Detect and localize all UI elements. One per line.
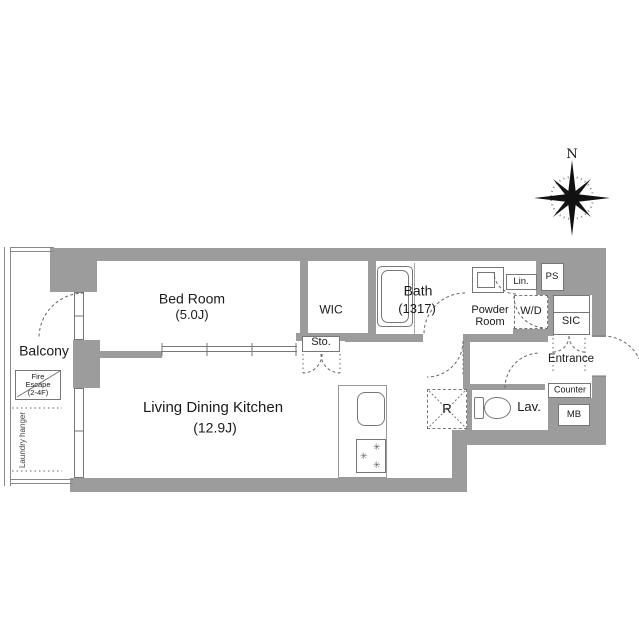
room-size-bedroom: (5.0J) — [175, 308, 208, 322]
dotted-guides — [12, 338, 585, 471]
compass-rose-icon: N — [534, 147, 610, 236]
room-label-powder-line1: Powder — [471, 305, 508, 317]
label-counter: Counter — [554, 385, 586, 394]
label-shoe-closet: SIC — [562, 316, 580, 328]
room-label-bedroom: Bed Room — [159, 292, 225, 307]
sic-door-arc-right — [569, 336, 585, 352]
room-size-ldk: (12.9J) — [193, 421, 237, 436]
room-label-ldk: Living Dining Kitchen — [143, 400, 283, 416]
sic-door-arc-left — [553, 336, 569, 352]
hall-door-arc — [427, 341, 463, 377]
label-washer-dryer: W/D — [520, 306, 541, 318]
entrance-jambs — [592, 336, 606, 376]
label-linen: Lin. — [513, 277, 528, 287]
door-swing-arcs — [39, 272, 639, 388]
storage-door-arc-right — [321, 354, 340, 373]
lavatory-door-arc — [505, 353, 540, 388]
room-label-lavatory: Lav. — [517, 400, 541, 414]
plan-linework: N — [0, 0, 639, 640]
room-label-balcony: Balcony — [19, 344, 69, 359]
storage-door-arc-left — [303, 354, 322, 373]
room-label-entrance: Entrance — [548, 353, 594, 365]
entrance-door-arc — [603, 336, 639, 376]
floor-plan: ✳ ✳ ✳ — [0, 0, 639, 640]
label-pipe-space: PS — [546, 272, 559, 282]
room-size-bath: (1317) — [398, 302, 436, 316]
label-laundry-hanger: Laundry hanger — [18, 404, 30, 476]
label-refrigerator: R — [442, 402, 451, 416]
label-storage: Sto. — [311, 337, 331, 349]
compass-north-label: N — [566, 147, 577, 162]
room-label-powder-line2: Room — [475, 317, 504, 329]
label-meter-box: MB — [567, 410, 581, 420]
room-label-wic: WIC — [319, 304, 342, 317]
partition-ticks — [162, 343, 296, 356]
compass-center-dot — [570, 196, 574, 200]
room-label-bath: Bath — [404, 284, 433, 299]
label-fire-escape-line3: (2-4F) — [28, 389, 48, 397]
